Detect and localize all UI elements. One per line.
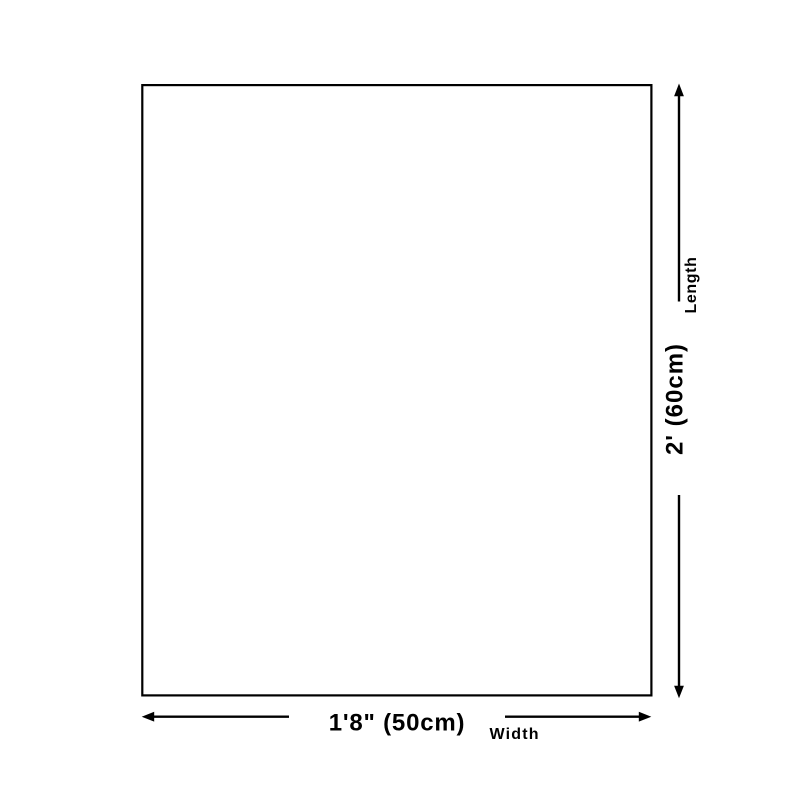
svg-text:2' (60cm): 2' (60cm) (662, 343, 689, 455)
svg-text:Width: Width (490, 726, 540, 743)
svg-text:1'8" (50cm): 1'8" (50cm) (329, 710, 466, 737)
svg-text:Length: Length (683, 257, 700, 314)
